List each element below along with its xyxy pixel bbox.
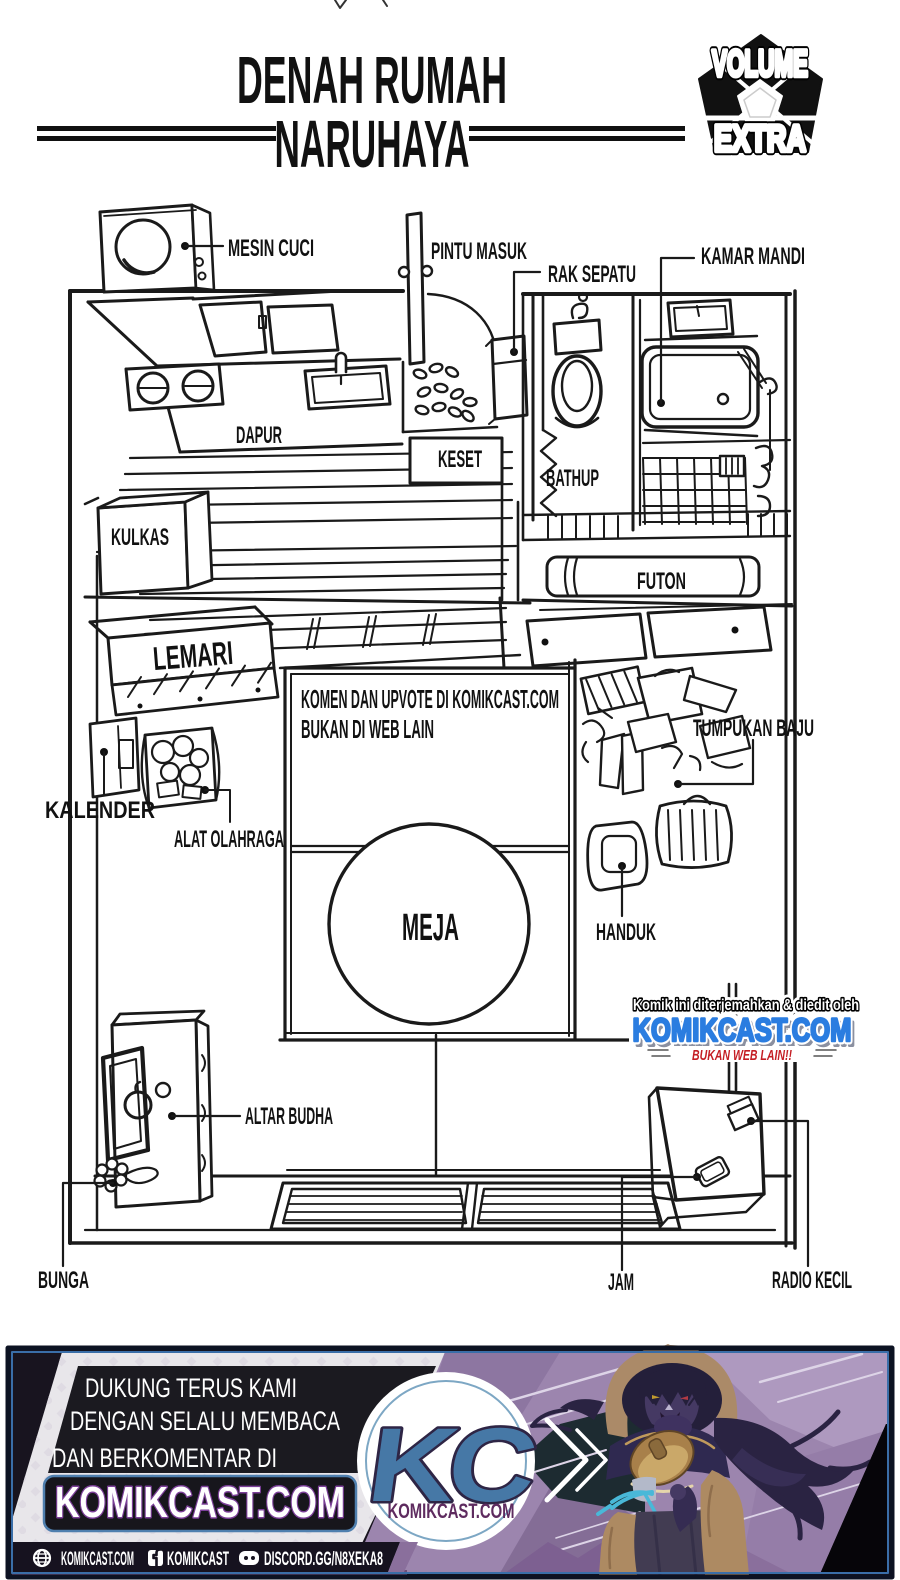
svg-text:EXTRA: EXTRA xyxy=(714,118,806,159)
svg-text:NARUHAYA: NARUHAYA xyxy=(275,107,470,182)
svg-text:DAPUR: DAPUR xyxy=(236,422,282,449)
svg-text:BATHUP: BATHUP xyxy=(546,465,599,492)
svg-text:KESET: KESET xyxy=(438,446,482,473)
svg-text:KULKAS: KULKAS xyxy=(111,524,169,551)
svg-text:DENGAN SELALU MEMBACA: DENGAN SELALU MEMBACA xyxy=(70,1406,340,1436)
svg-text:DUKUNG TERUS KAMI: DUKUNG TERUS KAMI xyxy=(85,1373,297,1403)
svg-text:KOMIKCAST.COM: KOMIKCAST.COM xyxy=(61,1549,134,1570)
svg-text:BUKAN DI WEB LAIN: BUKAN DI WEB LAIN xyxy=(301,714,434,744)
svg-text:KAMAR MANDI: KAMAR MANDI xyxy=(701,243,805,270)
svg-text:DAN BERKOMENTAR DI: DAN BERKOMENTAR DI xyxy=(52,1443,277,1473)
svg-text:KALENDER: KALENDER xyxy=(45,797,155,824)
svg-text:VOLUME: VOLUME xyxy=(712,43,808,84)
svg-text:BUNGA: BUNGA xyxy=(38,1267,89,1294)
svg-text:FUTON: FUTON xyxy=(637,568,686,595)
svg-text:KOMIKCAST: KOMIKCAST xyxy=(167,1549,229,1570)
svg-text:ALAT OLAHRAGA: ALAT OLAHRAGA xyxy=(174,826,284,853)
svg-text:JAM: JAM xyxy=(608,1269,634,1296)
svg-text:KOMIKCAST.COM: KOMIKCAST.COM xyxy=(633,1012,852,1048)
svg-text:HANDUK: HANDUK xyxy=(596,919,656,946)
svg-text:BUKAN WEB LAIN!!: BUKAN WEB LAIN!! xyxy=(692,1047,792,1064)
svg-text:PINTU MASUK: PINTU MASUK xyxy=(431,238,527,265)
svg-text:DISCORD.GG/N8XEKA8: DISCORD.GG/N8XEKA8 xyxy=(264,1549,383,1570)
svg-text:KOMIKCAST.COM: KOMIKCAST.COM xyxy=(388,1500,515,1523)
svg-text:TUMPUKAN BAJU: TUMPUKAN BAJU xyxy=(693,715,814,742)
svg-text:KOMIKCAST.COM: KOMIKCAST.COM xyxy=(55,1478,345,1527)
svg-text:MESIN CUCI: MESIN CUCI xyxy=(228,235,314,262)
svg-text:MEJA: MEJA xyxy=(402,907,459,949)
svg-text:RAK SEPATU: RAK SEPATU xyxy=(548,261,636,288)
svg-text:ALTAR BUDHA: ALTAR BUDHA xyxy=(245,1103,333,1130)
svg-text:RADIO KECIL: RADIO KECIL xyxy=(772,1267,852,1294)
svg-text:KOMEN DAN UPVOTE DI KOMIKCAST.: KOMEN DAN UPVOTE DI KOMIKCAST.COM xyxy=(301,684,559,714)
svg-text:LEMARI: LEMARI xyxy=(152,634,235,677)
